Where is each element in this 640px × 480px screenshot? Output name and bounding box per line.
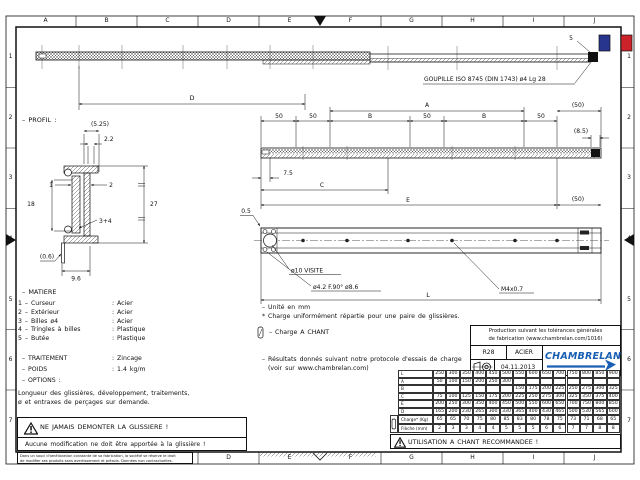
dim-c: C	[320, 182, 324, 189]
dim-a: A	[425, 102, 430, 109]
table-cell: 75	[553, 415, 566, 424]
table-cell: 500	[513, 400, 526, 408]
grid-number-left: 5	[4, 296, 17, 303]
matiere-item-value: : Acier	[112, 300, 133, 307]
table-cell: 325	[567, 393, 580, 401]
table-cell: 5	[513, 424, 526, 433]
table-cell: B	[398, 385, 433, 393]
table-cell: 350	[460, 370, 473, 378]
visite-callout: ø10 VISITE	[291, 268, 323, 275]
countersunk-callout: ø4.2 F.90° ø8.6	[313, 284, 358, 291]
grid-number-right: 7	[623, 417, 636, 424]
table-cell: Flèche (mm)	[398, 424, 433, 433]
grid-letter-top: F	[336, 17, 366, 24]
table-cell	[540, 378, 553, 386]
grid-letter-top: B	[92, 17, 122, 24]
table-cell: 430	[540, 408, 553, 416]
table-cell	[513, 378, 526, 386]
table-cell: 365	[513, 408, 526, 416]
table-cell: 71	[580, 415, 593, 424]
table-cell: 800	[593, 400, 606, 408]
table-cell: 5	[526, 424, 539, 433]
table-cell: 50	[433, 378, 446, 386]
dim-18: 18	[27, 201, 35, 208]
grid-number-left: 6	[4, 356, 17, 363]
table-cell	[593, 378, 606, 386]
matiere-title: – MATIERE	[22, 288, 56, 296]
table-cell: 330	[500, 408, 513, 416]
table-cell: 8	[593, 424, 606, 433]
grid-number-left: 3	[4, 174, 17, 181]
table-cell: 325	[607, 385, 620, 393]
table-cell: 5	[500, 424, 513, 433]
table-cell: 150	[473, 393, 486, 401]
table-cell: 75	[473, 415, 486, 424]
table-cell: 400	[607, 393, 620, 401]
item-1-label: 1	[49, 182, 53, 189]
dim-5-25: (5.25)	[91, 121, 109, 128]
table-cell: 78	[540, 415, 553, 424]
poids-value: : 1.4 kg/m	[112, 366, 145, 373]
end-pin	[588, 52, 598, 62]
note-results-1: – Résultats donnés suivant notre protoco…	[262, 356, 462, 363]
grid-number-right: 6	[623, 356, 636, 363]
dim-8-5: (8.5)	[574, 128, 588, 135]
table-cell: 150	[513, 385, 526, 393]
table-cell	[567, 378, 580, 386]
table-cell: 250	[526, 393, 539, 401]
table-cell	[500, 385, 513, 393]
usage-note-box: UTILISATION A CHANT RECOMMANDEE !	[390, 434, 621, 449]
view-closed-side: 50 50 B 50 B 50 A (50) (8.5) 7.5 C E (50…	[252, 102, 609, 209]
table-cell: 100	[446, 378, 459, 386]
table-cell: 2	[433, 424, 446, 433]
table-cell: 6	[553, 424, 566, 433]
grid-number-right: 4	[623, 235, 636, 242]
dim-50-ref: (50)	[572, 196, 584, 203]
warning-triangle-icon	[394, 437, 406, 448]
grid-letter-top: E	[275, 17, 305, 24]
options-label: – OPTIONS :	[22, 377, 61, 384]
dim-2-2: 2.2	[104, 136, 114, 143]
item-3-4-label: 3+4	[99, 218, 112, 225]
centering-marks	[6, 16, 634, 246]
table-cell: A	[398, 378, 433, 386]
model-code: R28	[471, 346, 507, 360]
table-cell: 200	[473, 378, 486, 386]
matiere-item-value: : Acier	[112, 318, 133, 325]
table-cell: 300	[486, 408, 499, 416]
traitement-label: – TRAITEMENT	[22, 355, 67, 362]
thread-callout: M4x0.7	[501, 286, 523, 293]
dim-9-6: 9.6	[71, 276, 81, 283]
view-top: 0.5 ø10 VISITE ø4.2 F.90° ø8.6 M4x0.7 L	[240, 208, 609, 304]
table-cell: Charge* (Kg)	[398, 415, 433, 424]
table-cell: 6	[540, 424, 553, 433]
table-cell: 750	[567, 370, 580, 378]
dim-l: L	[426, 291, 430, 299]
matiere-item-label: 3 – Billes ø4	[18, 318, 58, 325]
table-cell: 250	[433, 370, 446, 378]
note-results-2: (voir sur www.chambrelan.com)	[268, 365, 369, 372]
grid-letter-bottom: E	[275, 454, 305, 461]
table-cell: L	[398, 370, 433, 378]
tolerances-line-2: de fabrication (www.chambrelan.com/1016)	[471, 336, 620, 342]
table-cell: 300	[500, 378, 513, 386]
grid-letter-bottom: D	[214, 454, 244, 461]
warning-triangle-icon	[24, 422, 38, 435]
matiere-item-label: 4 – Tringles à billes	[18, 326, 81, 333]
dim-e: E	[406, 197, 410, 204]
table-cell: 375	[593, 393, 606, 401]
options-text-2: ø et entraxes de perçages sur demande.	[18, 399, 150, 406]
table-cell: 83	[513, 415, 526, 424]
table-cell: 225	[513, 393, 526, 401]
table-cell: C	[398, 393, 433, 401]
dim-b: B	[368, 113, 372, 120]
table-cell: 150	[460, 378, 473, 386]
table-cell: 70	[460, 415, 473, 424]
table-cell: D	[398, 408, 433, 416]
table-cell: 350	[580, 393, 593, 401]
table-cell: 75	[433, 393, 446, 401]
table-cell: 550	[513, 370, 526, 378]
dim-50: 50	[537, 113, 545, 120]
table-cell: 230	[460, 408, 473, 416]
tolerances-box: Production suivant les tolérances généra…	[470, 325, 621, 346]
dim-0-6: (0.6)	[40, 254, 54, 261]
table-cell: 300	[553, 393, 566, 401]
grid-number-right: 2	[623, 114, 636, 121]
table-cell: 200	[540, 385, 553, 393]
fine-print-box: Dans un souci d'amélioration constante d…	[17, 452, 193, 464]
table-cell	[446, 385, 459, 393]
table-cell: 600	[526, 370, 539, 378]
grid-letter-bottom: F	[336, 454, 366, 461]
table-cell: 400	[526, 408, 539, 416]
drawing-sheet: 5 GOUPILLE ISO 8745 (DIN 1743) ø4 Lg 28 …	[0, 0, 640, 480]
table-cell: 250	[446, 400, 459, 408]
table-cell: 900	[607, 370, 620, 378]
table-cell: 100	[446, 393, 459, 401]
table-cell: 65	[433, 415, 446, 424]
pin-ref-label: 5	[569, 35, 573, 42]
table-cell: 550	[526, 400, 539, 408]
grid-letter-top: I	[519, 17, 549, 24]
table-cell: 65	[607, 415, 620, 424]
matiere-item-label: 2 – Extérieur	[18, 309, 59, 316]
grid-letter-bottom: J	[580, 454, 610, 461]
item-2-label: 2	[109, 182, 113, 189]
grid-letter-top: D	[214, 17, 244, 24]
table-cell	[526, 378, 539, 386]
charge-chant-icon	[391, 418, 397, 430]
grid-number-left: 7	[4, 417, 17, 424]
table-cell	[473, 385, 486, 393]
table-cell: 530	[580, 408, 593, 416]
table-cell	[486, 385, 499, 393]
table-cell: E	[398, 400, 433, 408]
table-cell: 750	[580, 400, 593, 408]
profile-section: (5.25) 2.2 1 2 18 27 3+4 (0.6)	[27, 121, 158, 283]
table-cell: 175	[526, 385, 539, 393]
table-cell: 7	[567, 424, 580, 433]
grid-number-left: 1	[4, 53, 17, 60]
grid-number-right: 1	[623, 53, 636, 60]
matiere-item-label: 1 – Curseur	[18, 300, 55, 307]
goupille-callout: GOUPILLE ISO 8745 (DIN 1743) ø4 Lg 28	[424, 76, 546, 83]
note-load: * Charge uniformément répartie pour une …	[262, 313, 459, 320]
table-cell: 465	[553, 408, 566, 416]
tolerances-line-1: Production suivant les tolérances généra…	[471, 328, 620, 334]
dim-0-5: 0.5	[241, 208, 251, 215]
dim-50: 50	[309, 113, 317, 120]
fine-print-2: de modifier ses produits sans avertissem…	[20, 459, 173, 463]
table-cell: 600	[540, 400, 553, 408]
table-cell: 165	[433, 408, 446, 416]
dim-27: 27	[150, 201, 158, 208]
traitement-value: : Zincage	[112, 355, 142, 362]
grid-letter-bottom: G	[397, 454, 427, 461]
warning-line-1: NE JAMAIS DEMONTER LA GLISSIERE !	[40, 423, 168, 431]
table-cell: 68	[593, 415, 606, 424]
table-cell: 80	[526, 415, 539, 424]
grid-letter-top: J	[580, 17, 610, 24]
grid-letter-bottom: H	[458, 454, 488, 461]
grid-number-right: 5	[623, 296, 636, 303]
table-cell: 85	[500, 415, 513, 424]
fine-print-1: Dans un souci d'amélioration constante d…	[20, 454, 176, 458]
table-cell: 500	[567, 408, 580, 416]
matiere-item-label: 5 – Butée	[18, 335, 49, 342]
table-cell: 200	[433, 400, 446, 408]
table-cell	[580, 378, 593, 386]
table-cell: 400	[473, 370, 486, 378]
table-cell: 565	[593, 408, 606, 416]
table-cell: 250	[567, 385, 580, 393]
table-cell: 850	[607, 400, 620, 408]
grid-number-right: 3	[623, 174, 636, 181]
dim-7-5: 7.5	[283, 170, 293, 177]
dim-50: 50	[275, 113, 283, 120]
charge-chant-icon	[258, 327, 263, 338]
grid-letter-bottom: I	[519, 454, 549, 461]
table-cell: 65	[446, 415, 459, 424]
grid-number-left: 4	[4, 235, 17, 242]
usage-note-text: UTILISATION A CHANT RECOMMANDEE !	[408, 439, 538, 446]
grid-letter-top: G	[397, 17, 427, 24]
table-cell: 700	[553, 370, 566, 378]
matiere-list: 1 – Curseur: Acier2 – Extérieur: Acier3 …	[18, 300, 228, 348]
table-cell: 125	[460, 393, 473, 401]
matiere-item-value: : Plastique	[112, 335, 145, 342]
table-cell: 650	[540, 370, 553, 378]
table-cell: 700	[567, 400, 580, 408]
dim-50-ref: (50)	[572, 102, 584, 109]
table-cell	[553, 378, 566, 386]
table-cell: 350	[473, 400, 486, 408]
table-cell	[607, 378, 620, 386]
table-cell: 4	[486, 424, 499, 433]
table-cell: 500	[500, 370, 513, 378]
poids-label: – POIDS	[22, 366, 47, 373]
view-extended-side: 5 GOUPILLE ISO 8745 (DIN 1743) ø4 Lg 28 …	[36, 35, 598, 110]
table-cell: 400	[486, 400, 499, 408]
table-cell: 73	[567, 415, 580, 424]
table-cell	[433, 385, 446, 393]
warning-line-2: Aucune modification ne doit être apporté…	[25, 441, 205, 448]
table-cell: 265	[473, 408, 486, 416]
table-cell: 3	[446, 424, 459, 433]
table-cell: 225	[553, 385, 566, 393]
table-cell	[460, 385, 473, 393]
table-cell: 175	[486, 393, 499, 401]
table-cell: 8	[607, 424, 620, 433]
french-flag-icon	[599, 35, 632, 51]
options-text-1: Longueur des glissières, développement, …	[18, 390, 189, 397]
note-unit: – Unité en mm	[262, 304, 310, 311]
table-cell: 4	[473, 424, 486, 433]
note-chant: – Charge A CHANT	[269, 329, 329, 336]
material-label: ACIER	[506, 346, 543, 360]
table-cell: 3	[460, 424, 473, 433]
table-cell: 275	[580, 385, 593, 393]
dim-50: 50	[423, 113, 431, 120]
table-cell: 300	[446, 370, 459, 378]
grid-letter-top: A	[31, 17, 61, 24]
matiere-item-value: : Plastique	[112, 326, 145, 333]
table-cell: 80	[486, 415, 499, 424]
table-cell: 650	[553, 400, 566, 408]
grid-letter-top: C	[153, 17, 183, 24]
table-cell: 600	[607, 408, 620, 416]
charge-chant-icon-cell	[390, 415, 398, 433]
table-cell: 275	[540, 393, 553, 401]
table-cell: 300	[460, 400, 473, 408]
grid-number-left: 2	[4, 114, 17, 121]
warning-box: NE JAMAIS DEMONTER LA GLISSIERE ! Aucune…	[17, 417, 247, 451]
dim-b: B	[482, 113, 486, 120]
table-cell: 7	[580, 424, 593, 433]
table-cell: 450	[486, 370, 499, 378]
table-cell: 850	[593, 370, 606, 378]
table-cell: 800	[580, 370, 593, 378]
table-cell: 300	[593, 385, 606, 393]
profile-title: – PROFIL :	[22, 116, 56, 124]
table-cell: 200	[446, 408, 459, 416]
table-cell: 450	[500, 400, 513, 408]
matiere-item-value: : Acier	[112, 309, 133, 316]
grid-letter-top: H	[458, 17, 488, 24]
dim-d: D	[189, 94, 194, 102]
table-cell: 200	[500, 393, 513, 401]
table-cell: 250	[486, 378, 499, 386]
